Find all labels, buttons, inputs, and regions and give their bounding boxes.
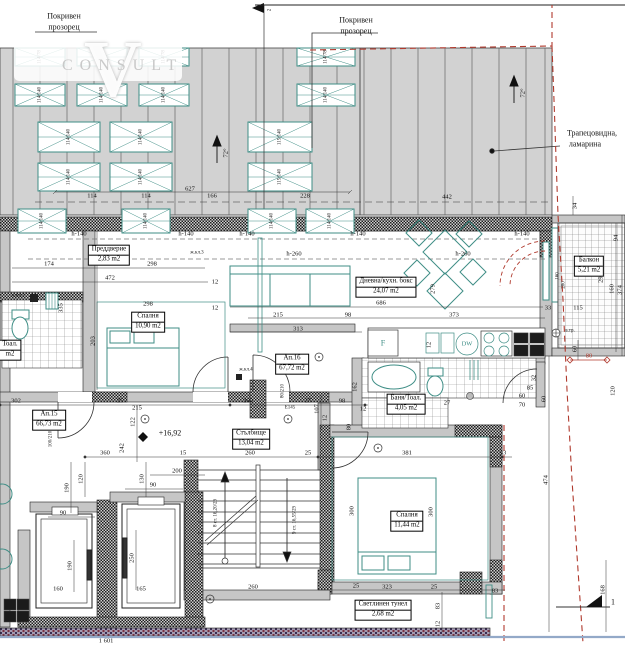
dim: 323 <box>382 584 392 591</box>
window-size: 114/78 <box>324 50 329 64</box>
dim: 32 <box>531 375 538 382</box>
dim: 25 <box>305 398 312 405</box>
dim: 280 <box>562 281 567 289</box>
dim: 174 <box>44 261 54 268</box>
window-size: 114/140 <box>40 213 45 229</box>
height-label: h-260 <box>455 251 470 258</box>
window-size: 114/140 <box>144 213 149 229</box>
section-number-top: 2 <box>268 9 273 12</box>
dim: 98 <box>339 398 346 405</box>
dim: 474 <box>543 475 550 485</box>
dim: 80 <box>346 424 353 431</box>
window-size: 114/140 <box>38 87 43 103</box>
walls <box>0 215 625 636</box>
dim-red: 80 <box>586 353 593 360</box>
dim: 279 <box>430 284 437 294</box>
label-sheet-metal: Трапецовидна, <box>567 129 617 138</box>
dim: 381 <box>402 450 412 457</box>
kitchen <box>368 328 545 358</box>
dim: 120 <box>78 474 85 484</box>
fridge-symbol: F <box>381 339 385 348</box>
room-label-living: Дневна/кухн. бокс24,07 m2 <box>355 277 416 298</box>
dim: 165 <box>136 586 146 593</box>
watermark-consult: CONSULT <box>62 57 183 75</box>
dim: 242 <box>119 443 126 453</box>
dim: 250 <box>129 553 136 563</box>
height-label: h-140 <box>71 231 86 238</box>
door-size: 100/210 <box>49 431 54 447</box>
dim: 360 <box>100 450 110 457</box>
window-size: 114/140 <box>139 169 144 185</box>
room-label-light-tunnel: Светлинен тунел2,68 m2 <box>355 600 412 621</box>
dim: 298 <box>147 261 157 268</box>
window-size: 114/140 <box>139 129 144 145</box>
height-label: h-260 <box>286 251 301 258</box>
window-size: 114/140 <box>67 169 72 185</box>
section-marker-bottom <box>556 595 610 607</box>
dim: 1 601 <box>99 638 114 645</box>
room-label-wc-left: Тоал.m2 <box>0 340 22 361</box>
dim: 203 <box>90 336 97 346</box>
label-sheet-metal2: ламарина <box>569 140 601 149</box>
window-size: 114/140 <box>270 213 275 229</box>
room-label-bedroom1: Спалня10,90 m2 <box>131 312 165 333</box>
dim: 83 <box>492 588 499 595</box>
dim: 12 <box>435 621 442 628</box>
dim: 33 <box>545 305 552 312</box>
height-label: h-140 <box>350 231 365 238</box>
dim: 60 <box>572 346 579 353</box>
dishwasher-symbol: DW <box>462 341 473 348</box>
dim: 162 <box>352 382 359 392</box>
dim: 114 <box>87 193 97 200</box>
dim: 200 <box>172 468 182 475</box>
dim: 166 <box>207 193 217 200</box>
dim: 228 <box>300 193 310 200</box>
window-size: 115/140 <box>278 169 283 185</box>
elevation-marker: +16,92 <box>159 429 182 438</box>
dim: 25 <box>305 450 312 457</box>
dim: 85 <box>527 385 534 392</box>
section-number-bottom: 1 <box>611 598 615 607</box>
window-size: 114/140 <box>67 129 72 145</box>
dim: 12 <box>360 406 367 413</box>
dim: 168 <box>600 585 607 595</box>
dim: 83 <box>435 603 442 610</box>
dim: 313 <box>293 326 303 333</box>
column-label: ж.кл.3 <box>190 251 203 256</box>
dim: 160 <box>609 284 616 294</box>
dim: 260 <box>248 584 258 591</box>
dim: 115 <box>573 305 583 312</box>
dim: 98 <box>345 312 352 319</box>
dim: 94 <box>613 235 620 242</box>
dim: 25 <box>431 584 438 591</box>
height-label: h-140 <box>514 231 529 238</box>
dim: 15 <box>180 450 187 457</box>
dim: 472 <box>105 275 115 282</box>
room-label-vestibule: Преддверие2,83 m2 <box>88 245 130 266</box>
dim: 160 <box>556 272 561 280</box>
height-label: h-140 <box>239 231 254 238</box>
room-label-bath: Баня/Тоал.4,05 m2 <box>387 394 426 415</box>
door-size: 80/210 <box>281 384 286 398</box>
dim: 260 <box>245 450 255 457</box>
bathrooms <box>2 300 536 428</box>
dim: 374 <box>617 285 624 295</box>
dim: 190 <box>64 483 71 493</box>
label-roof-window-center: Покривен <box>339 16 373 25</box>
window-size: 114/140 <box>328 213 333 229</box>
dim: 60 <box>519 393 526 400</box>
vent-label: в.тр. <box>565 329 575 334</box>
dim: 60 <box>541 396 548 403</box>
dim: 12 <box>212 279 219 286</box>
dim: 70 <box>519 402 526 409</box>
balcony-door-swing <box>500 241 545 286</box>
dim: 260 <box>243 398 253 405</box>
dim: 160 <box>53 586 63 593</box>
dim: 114 <box>141 193 151 200</box>
label-roof-window-center2: прозорец <box>340 27 371 36</box>
floor-plan-sheet: Покривен прозорец Покривен прозорец Трап… <box>0 0 625 645</box>
label-roof-window-left: Покривен <box>47 12 81 21</box>
height-label: h-140 <box>178 231 193 238</box>
slope-label: 72° <box>520 88 527 97</box>
dim: 215 <box>132 405 142 412</box>
dim: 215 <box>273 312 283 319</box>
label-roof-window-left2: прозорец <box>48 23 79 32</box>
dim: 90 <box>60 510 67 517</box>
dim: 300 <box>428 507 435 517</box>
room-label-ap15: Ап.1566,73 m2 <box>32 410 66 431</box>
dim: 25 <box>117 398 124 405</box>
room-label-ap16: Ап.1667,72 m2 <box>275 354 309 375</box>
room-label-balcony: Балкон5,21 m2 <box>574 256 604 277</box>
slope-label: 72° <box>223 148 230 157</box>
room-label-bedroom2: Спалня11,44 m2 <box>390 511 423 532</box>
dim: 33 <box>500 450 507 457</box>
dim: 302 <box>11 398 21 405</box>
dim: 686 <box>376 300 386 307</box>
dim: 90 <box>150 482 157 489</box>
dim: 107 <box>314 404 321 414</box>
dim: 130 <box>139 474 146 484</box>
window-size: 114/140 <box>324 87 329 103</box>
window-size: 115/140 <box>278 129 283 145</box>
stair-flight-down: 9 ст. 16,55/29 <box>293 506 298 534</box>
door-code: Е145 <box>285 406 296 411</box>
dim: 34 <box>572 203 579 210</box>
window-size: 114/140 <box>162 87 167 103</box>
dim: 27 <box>444 400 451 407</box>
dim: 627 <box>185 186 195 193</box>
dim: 122 <box>130 417 137 427</box>
dim: 335 <box>58 303 65 313</box>
dim: 442 <box>442 194 452 201</box>
dim: 12 <box>426 342 433 349</box>
dim: 12 <box>322 415 329 422</box>
room-label-stairs: Стълбище13,04 m2 <box>232 429 270 450</box>
column-label: ж.кл.4 <box>239 368 252 373</box>
stair-flight-up: 8 ст. 16,20/29 <box>214 499 219 527</box>
dim: 12 <box>212 305 219 312</box>
dim: 25 <box>353 583 360 590</box>
dim: 190 <box>67 561 74 571</box>
dim: 298 <box>143 301 153 308</box>
column-label: ж.кл.2 <box>11 294 24 299</box>
dim: 373 <box>449 312 459 319</box>
dim: 120 <box>610 386 617 396</box>
dim: 300 <box>349 506 356 516</box>
